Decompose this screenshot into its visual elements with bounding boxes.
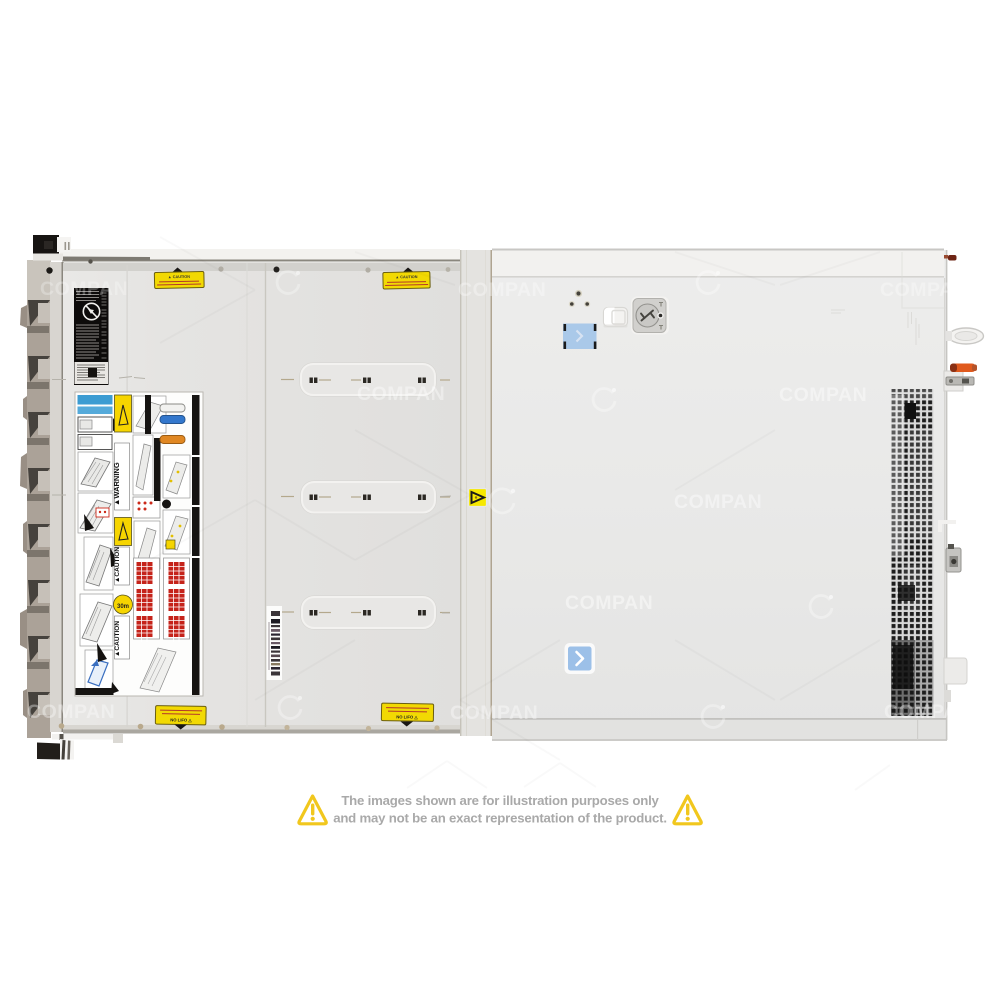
svg-text:The images shown are for illus: The images shown are for illustration pu… — [341, 793, 659, 808]
svg-text:COMPAN: COMPAN — [880, 279, 968, 301]
svg-text:▲ CAUTION: ▲ CAUTION — [395, 275, 417, 279]
svg-text:COMPAN: COMPAN — [565, 592, 653, 614]
svg-text:▲ CAUTION: ▲ CAUTION — [168, 275, 190, 279]
svg-text:NO LIFO △: NO LIFO △ — [170, 717, 192, 722]
svg-text:NO LIFO △: NO LIFO △ — [396, 714, 418, 719]
svg-text:COMPAN: COMPAN — [27, 701, 115, 723]
svg-text:COMPAN: COMPAN — [779, 384, 867, 406]
svg-text:▲CAUTION: ▲CAUTION — [114, 547, 121, 583]
svg-text:30m: 30m — [117, 604, 129, 610]
svg-text:COMPAN: COMPAN — [450, 702, 538, 724]
svg-text:COMPAN: COMPAN — [40, 278, 128, 300]
svg-text:▲WARNING: ▲WARNING — [112, 462, 121, 506]
svg-text:COMPAN: COMPAN — [458, 279, 546, 301]
svg-text:and may not be an exact repres: and may not be an exact representation o… — [333, 811, 667, 826]
svg-text:COMPAN: COMPAN — [357, 383, 445, 405]
svg-text:COMPAN: COMPAN — [674, 491, 762, 513]
svg-text:▲CAUTION: ▲CAUTION — [114, 621, 121, 657]
svg-text:COMPAN: COMPAN — [884, 701, 972, 723]
